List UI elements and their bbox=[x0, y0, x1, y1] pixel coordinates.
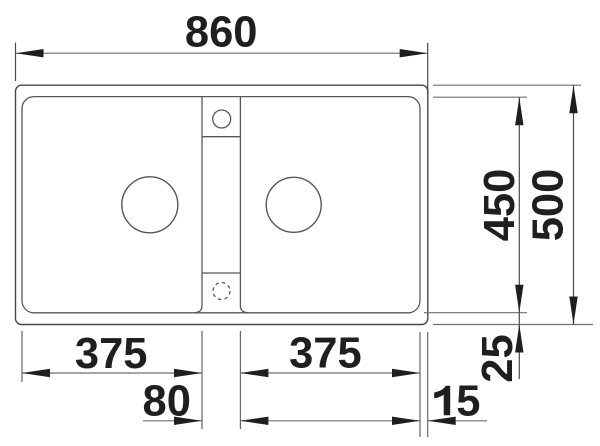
svg-text:450: 450 bbox=[476, 169, 524, 242]
svg-text:860: 860 bbox=[185, 9, 258, 57]
svg-text:375: 375 bbox=[75, 330, 148, 378]
svg-text:375: 375 bbox=[289, 330, 362, 378]
svg-text:500: 500 bbox=[525, 169, 573, 242]
svg-text:5: 5 bbox=[456, 378, 480, 426]
svg-text:25: 25 bbox=[474, 334, 522, 382]
svg-text:80: 80 bbox=[143, 378, 191, 426]
